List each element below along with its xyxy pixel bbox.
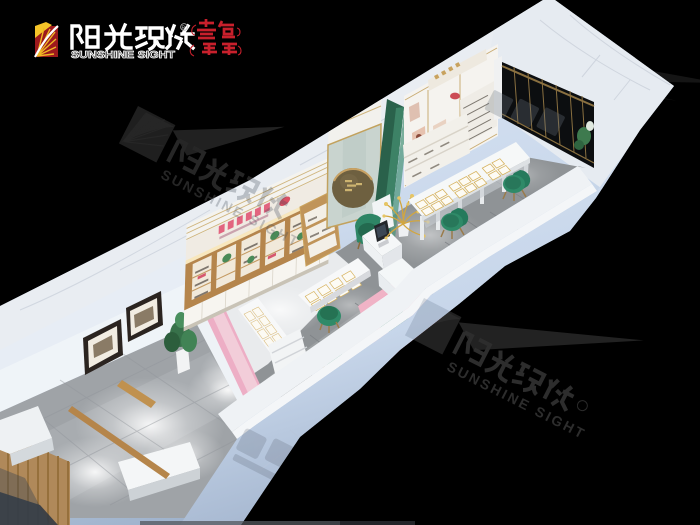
svg-text:R: R [182, 26, 186, 32]
svg-text:SUNSHINE SIGHT: SUNSHINE SIGHT [71, 49, 176, 61]
